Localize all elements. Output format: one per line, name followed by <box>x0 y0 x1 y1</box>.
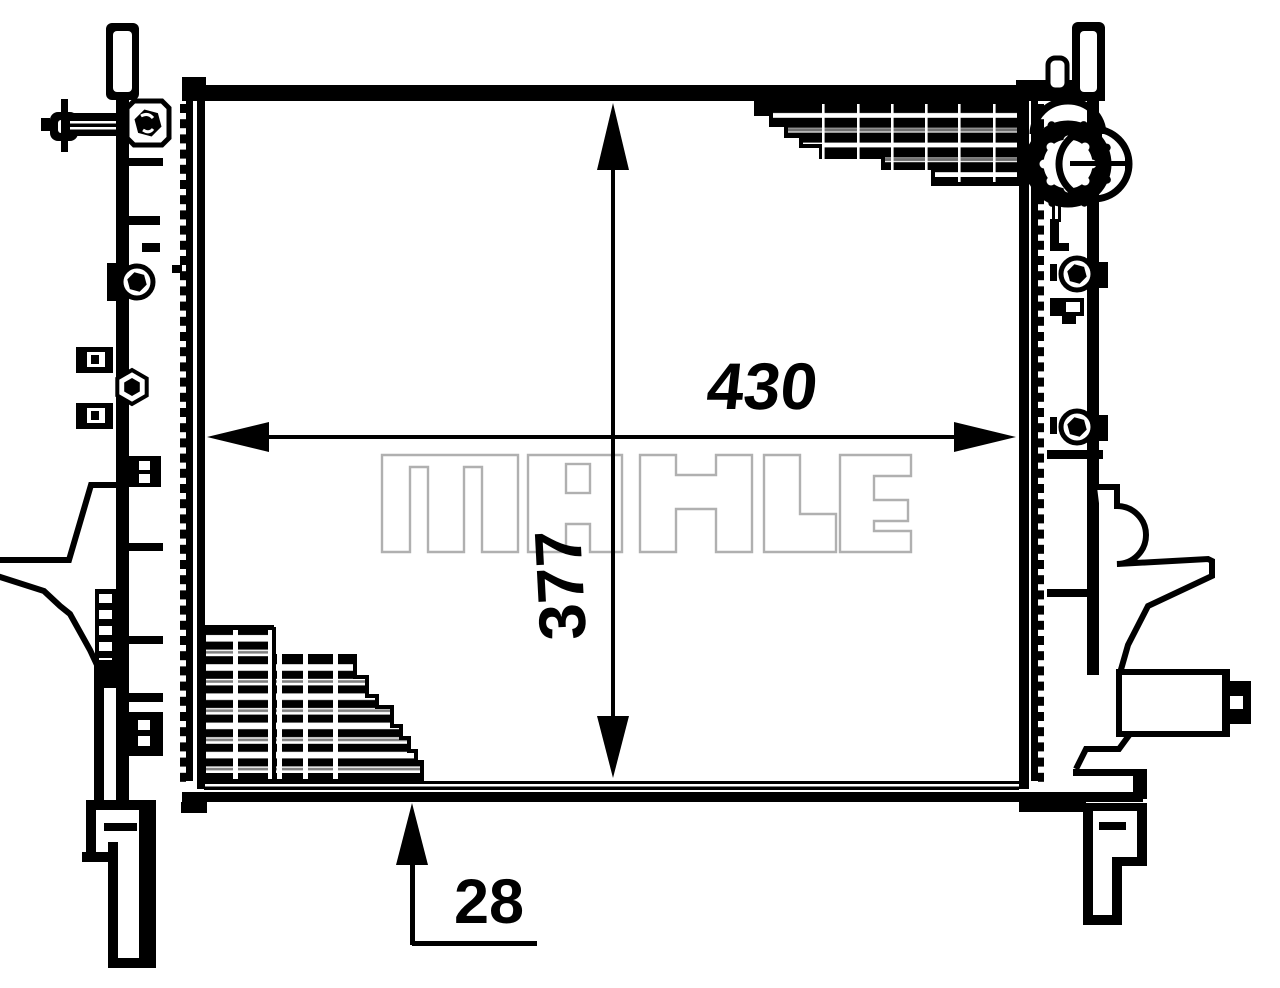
svg-text:430: 430 <box>703 350 821 424</box>
svg-text:377: 377 <box>520 528 600 642</box>
svg-text:28: 28 <box>454 867 524 937</box>
